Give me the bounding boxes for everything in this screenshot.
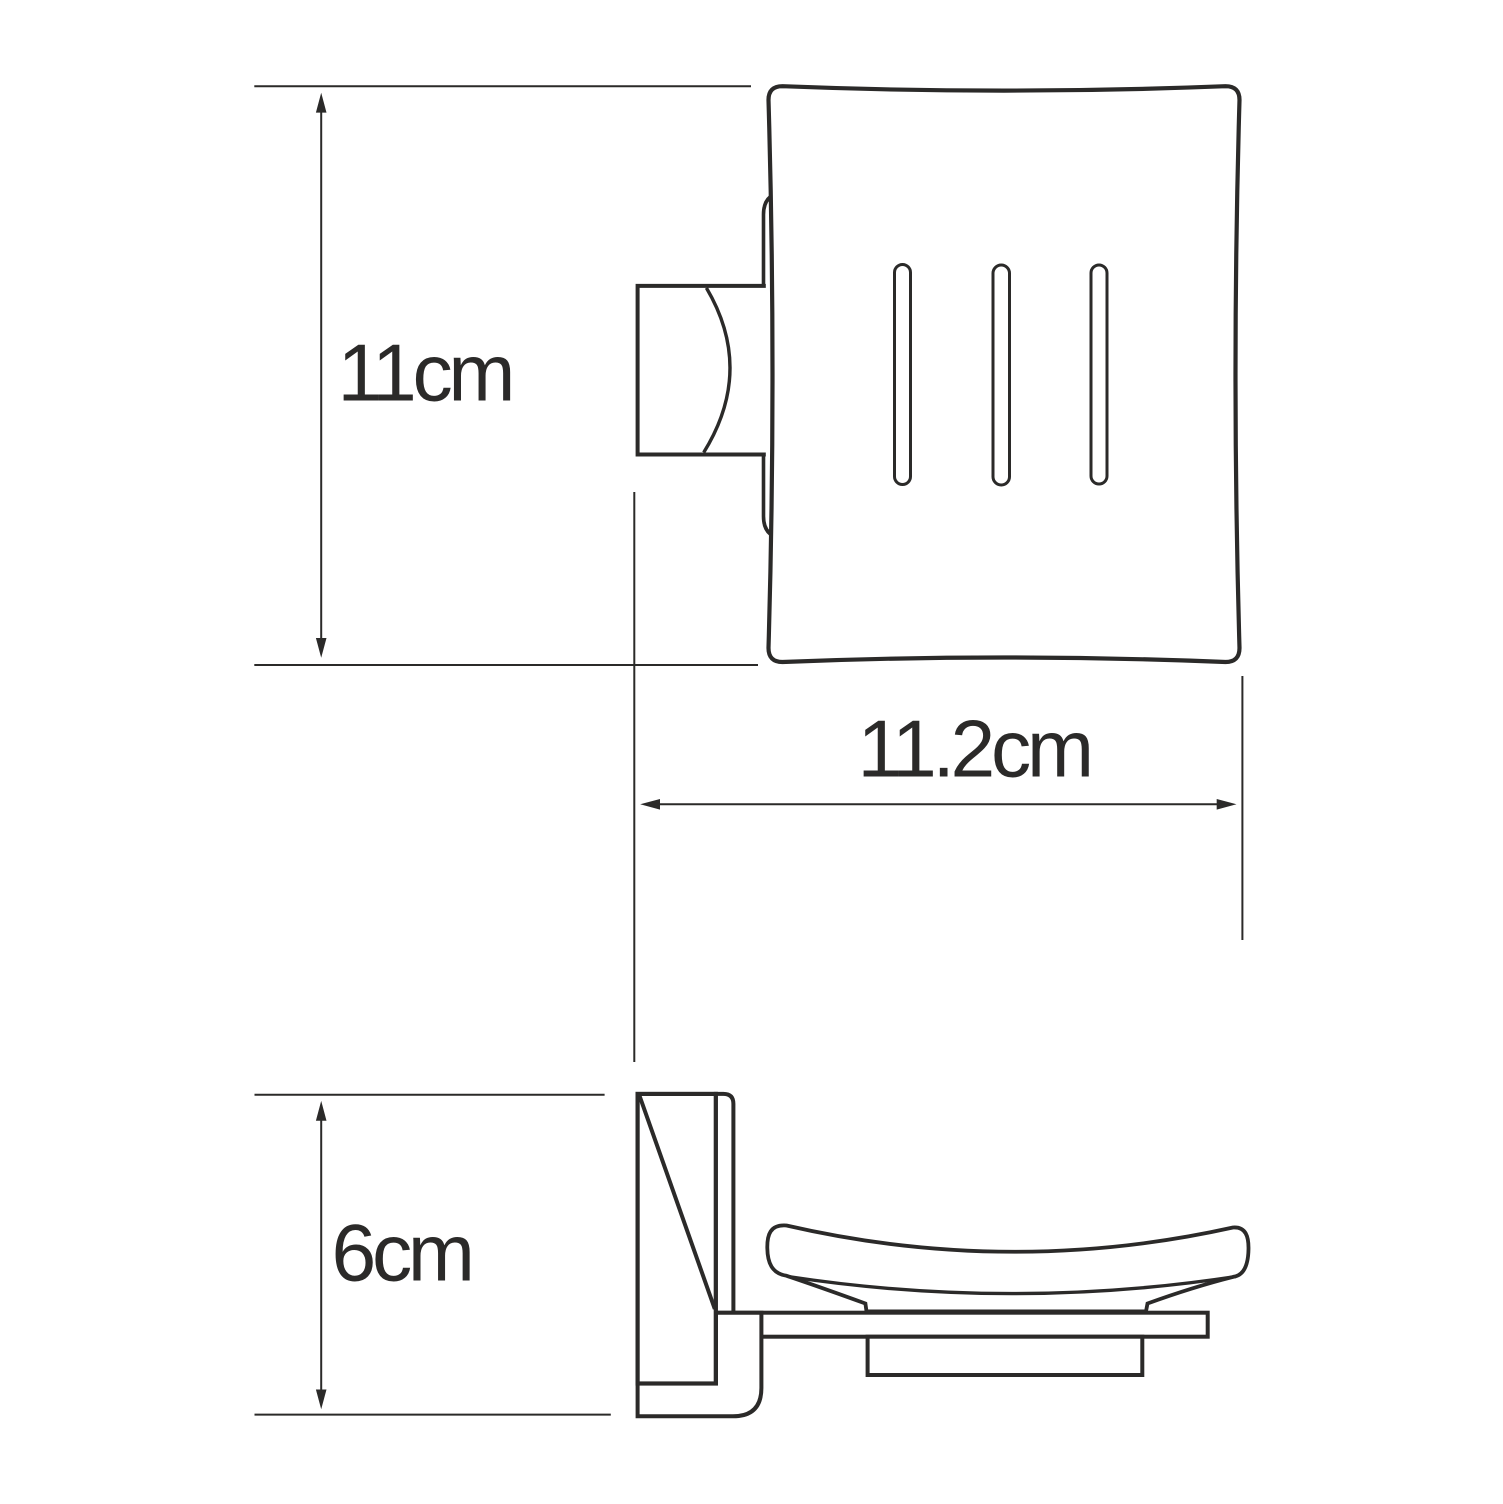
svg-text:11cm: 11cm [338, 329, 512, 419]
svg-text:11.2cm: 11.2cm [858, 704, 1090, 794]
svg-text:6cm: 6cm [332, 1209, 471, 1299]
